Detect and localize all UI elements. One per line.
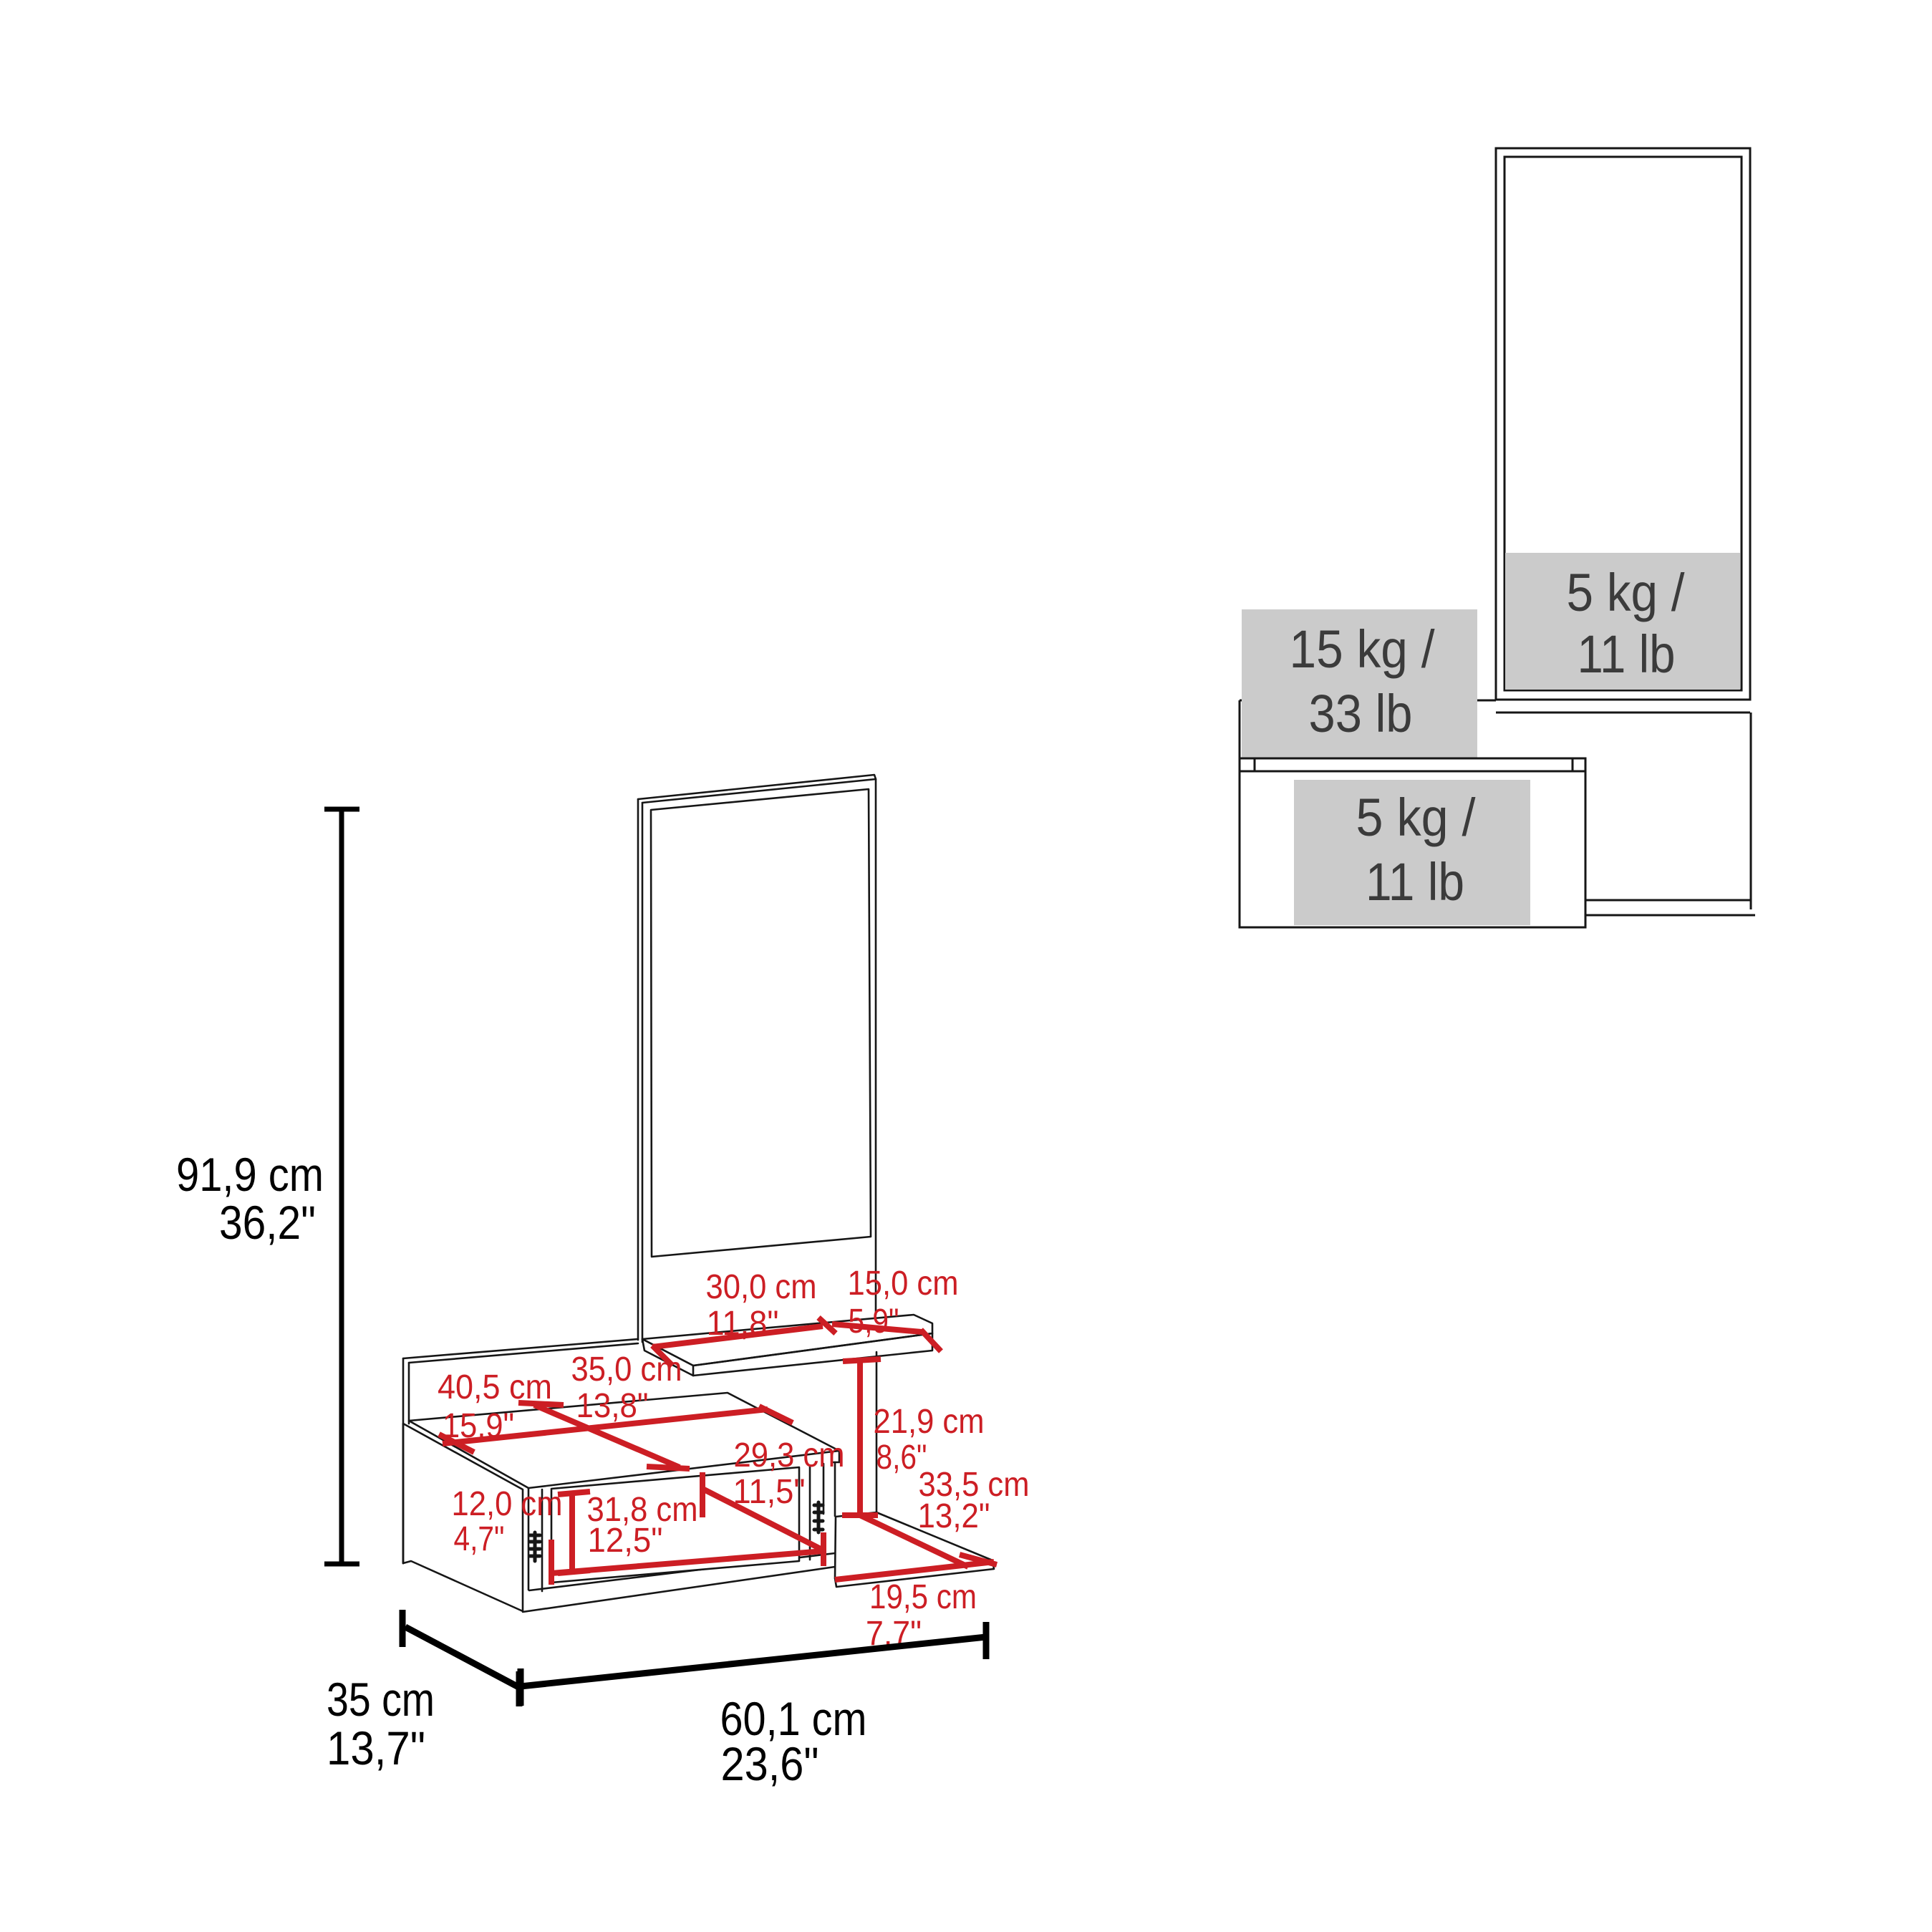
svg-text:23,6": 23,6" [721,1737,819,1790]
svg-text:5 kg /: 5 kg / [1356,788,1476,847]
svg-text:33 lb: 33 lb [1309,684,1413,743]
svg-text:19,5 cm: 19,5 cm [869,1578,977,1616]
svg-text:12,5": 12,5" [588,1522,663,1560]
svg-text:11 lb: 11 lb [1366,852,1464,912]
svg-text:15,0 cm: 15,0 cm [848,1265,959,1303]
svg-text:35,0 cm: 35,0 cm [571,1351,682,1388]
svg-text:4,7": 4,7" [454,1520,505,1558]
svg-text:11 lb: 11 lb [1578,624,1676,684]
svg-text:13,2": 13,2" [918,1497,990,1535]
svg-text:40,5 cm: 40,5 cm [438,1368,552,1406]
svg-text:15,9": 15,9" [443,1407,514,1445]
svg-text:91,9 cm: 91,9 cm [176,1148,324,1201]
svg-text:21,9 cm: 21,9 cm [874,1403,985,1441]
svg-text:13,7": 13,7" [327,1721,425,1774]
svg-text:15 kg /: 15 kg / [1290,619,1435,679]
svg-text:5,9": 5,9" [849,1303,899,1341]
svg-text:11,5": 11,5" [733,1473,806,1511]
svg-text:35 cm: 35 cm [327,1673,435,1726]
svg-text:36,2": 36,2" [219,1196,316,1249]
svg-text:12,0 cm: 12,0 cm [452,1485,563,1523]
svg-text:5 kg /: 5 kg / [1567,563,1685,622]
svg-text:29,3 cm: 29,3 cm [734,1436,845,1474]
svg-text:11,8": 11,8" [707,1305,779,1343]
svg-text:13,8": 13,8" [576,1387,649,1425]
svg-text:30,0 cm: 30,0 cm [706,1268,817,1306]
